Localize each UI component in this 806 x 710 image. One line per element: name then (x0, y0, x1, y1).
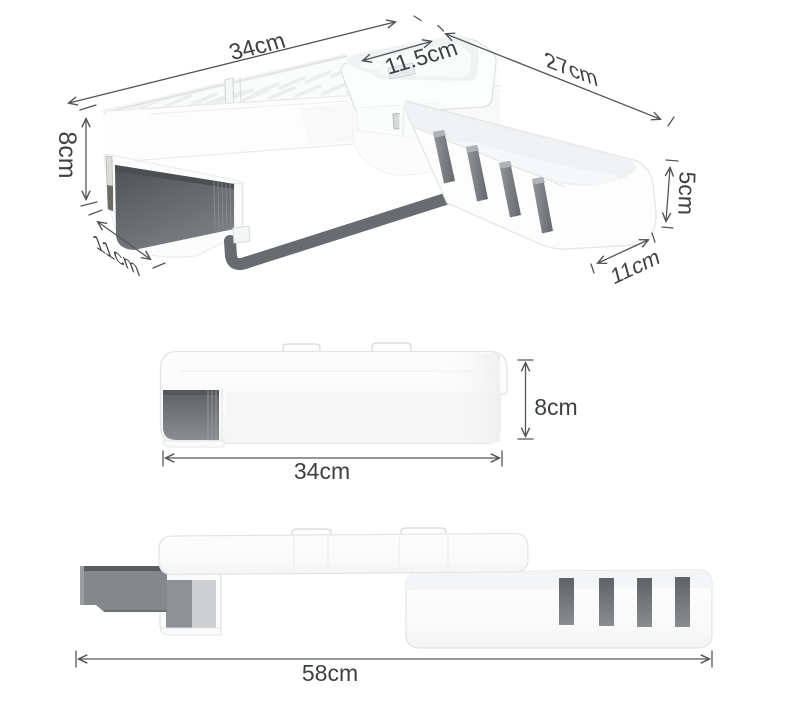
svg-text:5cm: 5cm (673, 171, 701, 215)
svg-text:8cm: 8cm (534, 394, 577, 420)
svg-text:58cm: 58cm (302, 660, 358, 686)
svg-text:34cm: 34cm (294, 458, 350, 484)
svg-text:8cm: 8cm (53, 131, 81, 178)
